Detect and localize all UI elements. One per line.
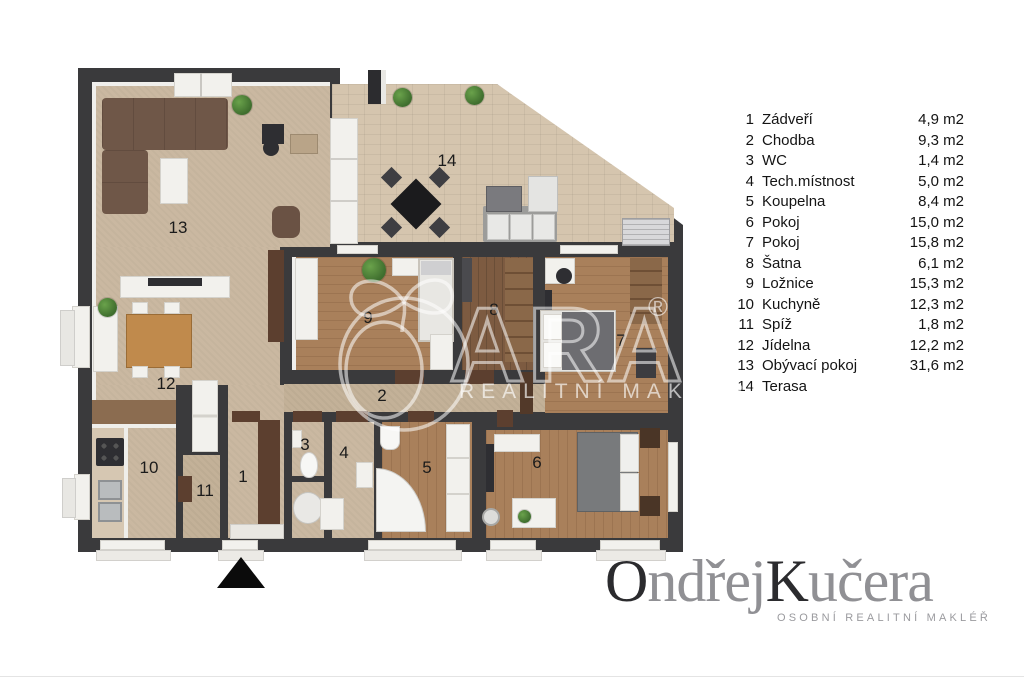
legend-room-area: 15,0 m2 [910,213,964,234]
legend-row: 8Šatna6,1 m2 [724,254,964,275]
left-window-sill [62,478,76,518]
bed-7-pillow [543,314,562,340]
legend-room-name: Spíž [754,315,792,336]
nightstand-6 [640,428,660,448]
legend-row: 9Ložnice15,3 m2 [724,274,964,295]
plan-room-number-11: 11 [196,481,214,501]
legend-row: 12Jídelna12,2 m2 [724,336,964,357]
logo-part-4: učera [808,548,933,614]
toilet-3 [300,452,318,478]
skylight-window-pane [200,73,202,97]
entry-mat [230,524,284,539]
logo-part-2: ndřej [647,548,765,614]
bottom-window-sill [364,550,462,561]
broker-logo-tagline: OSOBNÍ REALITNÍ MAKLÉŘ [777,612,991,624]
door-opening-room7 [533,386,545,412]
bench-9 [430,334,453,370]
bottom-window-sill [486,550,542,561]
plan-room-number-5: 5 [422,458,431,478]
terrace-door-band [330,118,358,244]
legend-room-name: Terasa [754,377,807,398]
legend-room-number: 6 [724,213,754,234]
terrace-sofa-cushion [487,214,509,240]
legend-row: 5Koupelna8,4 m2 [724,192,964,213]
legend-room-number: 10 [724,295,754,316]
coffee-table [160,158,188,204]
boiler [293,492,323,524]
bottom-window [100,540,165,550]
plant [362,258,386,282]
sofa-top-arm [102,98,228,150]
dining-chair [164,302,180,314]
legend-room-number: 12 [724,336,754,357]
legend-room-area: 4,9 m2 [918,110,964,131]
plant [465,86,484,105]
legend-room-area: 5,0 m2 [918,172,964,193]
dresser-9 [392,258,420,276]
terrace-sofa-cushion [533,214,555,240]
door-leaf-entry [258,420,280,536]
kitchen-sink [98,480,122,500]
sofa-left-arm [102,150,148,214]
bed-7-blanket [562,312,614,370]
legend-room-name: Koupelna [754,192,825,213]
wardrobe-7 [630,258,662,324]
floorplan-image: 1234567891011121314 ARA ® REALITNÍ MAKLÉ… [0,0,1024,683]
legend-room-area: 6,1 m2 [918,254,964,275]
legend-row: 2Chodba9,3 m2 [724,131,964,152]
right-window [668,442,678,512]
legend-room-number: 4 [724,172,754,193]
legend-room-number: 3 [724,151,754,172]
bath-cabinet [446,424,470,532]
plan-room-number-2: 2 [377,386,386,406]
legend-room-name: Tech.místnost [754,172,855,193]
bed-7-pillow [543,342,562,368]
terrace-side-window [560,245,618,254]
legend-room-number: 11 [724,315,754,336]
plan-room-number-4: 4 [339,443,348,463]
north-arrow-icon [217,557,265,588]
door-wc [293,411,322,422]
legend-room-area: 12,3 m2 [910,295,964,316]
fan-6 [482,508,500,526]
plant [518,510,531,523]
plan-room-number-1: 1 [238,467,247,487]
legend-row: 1Zádveří4,9 m2 [724,110,964,131]
legend-room-name: Obývací pokoj [754,356,857,377]
bottom-window [222,540,258,550]
bed-6-pillow [620,434,639,472]
bottom-divider [0,676,1024,677]
legend-room-number: 14 [724,377,754,398]
legend-room-name: WC [754,151,787,172]
door-closet8 [465,370,494,384]
plan-room-number-14: 14 [438,151,457,171]
legend-room-number: 2 [724,131,754,152]
kitchen-counter-top [92,400,176,428]
dining-chair [132,302,148,314]
legend-room-name: Pokoj [754,213,800,234]
legend-room-area: 12,2 m2 [910,336,964,357]
sink-4 [356,462,373,488]
legend-room-area: 1,8 m2 [918,315,964,336]
wardrobe-8 [505,258,533,362]
legend-row: 6Pokoj15,0 m2 [724,213,964,234]
hall-wardrobe [520,372,533,414]
cooktop [96,438,124,466]
legend-room-number: 5 [724,192,754,213]
terrace-coffee-table [486,186,522,212]
door-tech [336,411,368,422]
legend-room-name: Ložnice [754,274,814,295]
plan-room-number-8: 8 [489,300,498,320]
bookshelf [268,250,284,342]
legend-room-name: Šatna [754,254,801,275]
legend-room-number: 7 [724,233,754,254]
legend-row: 10Kuchyně12,3 m2 [724,295,964,316]
legend-row: 3WC1,4 m2 [724,151,964,172]
wardrobe-9 [295,258,318,340]
desk-chair-7 [556,268,572,284]
legend-room-number: 8 [724,254,754,275]
tv [148,278,202,286]
door-room6 [497,410,513,427]
chimney [368,70,386,104]
terrace-door-frame [330,200,358,202]
door-bedroom9 [395,370,424,384]
plan-room-number-13: 13 [169,218,188,238]
legend-room-name: Pokoj [754,233,800,254]
toilet-5 [380,426,400,450]
bed-6-pillow [620,473,639,511]
room-legend: 1Zádveří4,9 m22Chodba9,3 m23WC1,4 m24Tec… [724,110,964,397]
terrace-door-frame [330,158,358,160]
legend-row: 11Spíž1,8 m2 [724,315,964,336]
tv-6 [486,444,494,492]
side-cabinet [290,134,318,154]
door-bathroom [408,411,434,422]
ac-unit [622,218,670,246]
dining-chair [132,366,148,378]
desk-chair [263,140,279,156]
bottom-window [368,540,456,550]
legend-room-area: 15,8 m2 [910,233,964,254]
bottom-window [490,540,536,550]
plant [98,298,117,317]
legend-row: 13Obývací pokoj31,6 m2 [724,356,964,377]
dining-table [126,314,192,368]
plan-room-number-9: 9 [363,308,372,328]
left-window-sill [60,310,75,366]
legend-room-area: 9,3 m2 [918,131,964,152]
skylight-window [174,73,232,97]
plan-room-number-3: 3 [300,435,309,455]
nightstand-6 [640,496,660,516]
terrace-chaise [528,176,558,212]
plan-room-number-12: 12 [157,374,176,394]
door-entry-room1 [232,411,260,422]
legend-room-name: Kuchyně [754,295,820,316]
plan-room-number-10: 10 [140,458,159,478]
shelf-8 [462,258,472,302]
terrace-side-window [337,245,378,254]
cabinet-7 [636,348,656,378]
legend-room-name: Chodba [754,131,815,152]
legend-room-area: 1,4 m2 [918,151,964,172]
legend-room-area: 8,4 m2 [918,192,964,213]
left-window-2 [74,474,90,520]
legend-row: 7Pokoj15,8 m2 [724,233,964,254]
shelf-6 [494,434,540,452]
broker-logo: OndřejKučera [605,551,933,611]
bed-9-pillow [421,261,451,275]
legend-room-number: 9 [724,274,754,295]
floor-hallway [284,384,545,412]
door-leaf-pantry [178,476,192,502]
plant [393,88,412,107]
logo-part-3: K [766,548,808,614]
tall-cabinet [192,380,218,452]
bottom-window-sill [96,550,171,561]
legend-room-name: Jídelna [754,336,810,357]
terrace-sofa-cushion [510,214,532,240]
washer [320,498,344,530]
legend-room-area: 31,6 m2 [910,356,964,377]
legend-room-name: Zádveří [754,110,813,131]
legend-room-number: 13 [724,356,754,377]
legend-room-number: 1 [724,110,754,131]
logo-part-1: O [605,548,647,614]
legend-row: 4Tech.místnost5,0 m2 [724,172,964,193]
legend-room-area: 15,3 m2 [910,274,964,295]
plan-room-number-7: 7 [616,331,625,351]
plan-room-number-6: 6 [532,453,541,473]
plant [232,95,252,115]
legend-row: 14Terasa [724,377,964,398]
armchair [272,206,300,238]
kitchen-sink [98,502,122,522]
